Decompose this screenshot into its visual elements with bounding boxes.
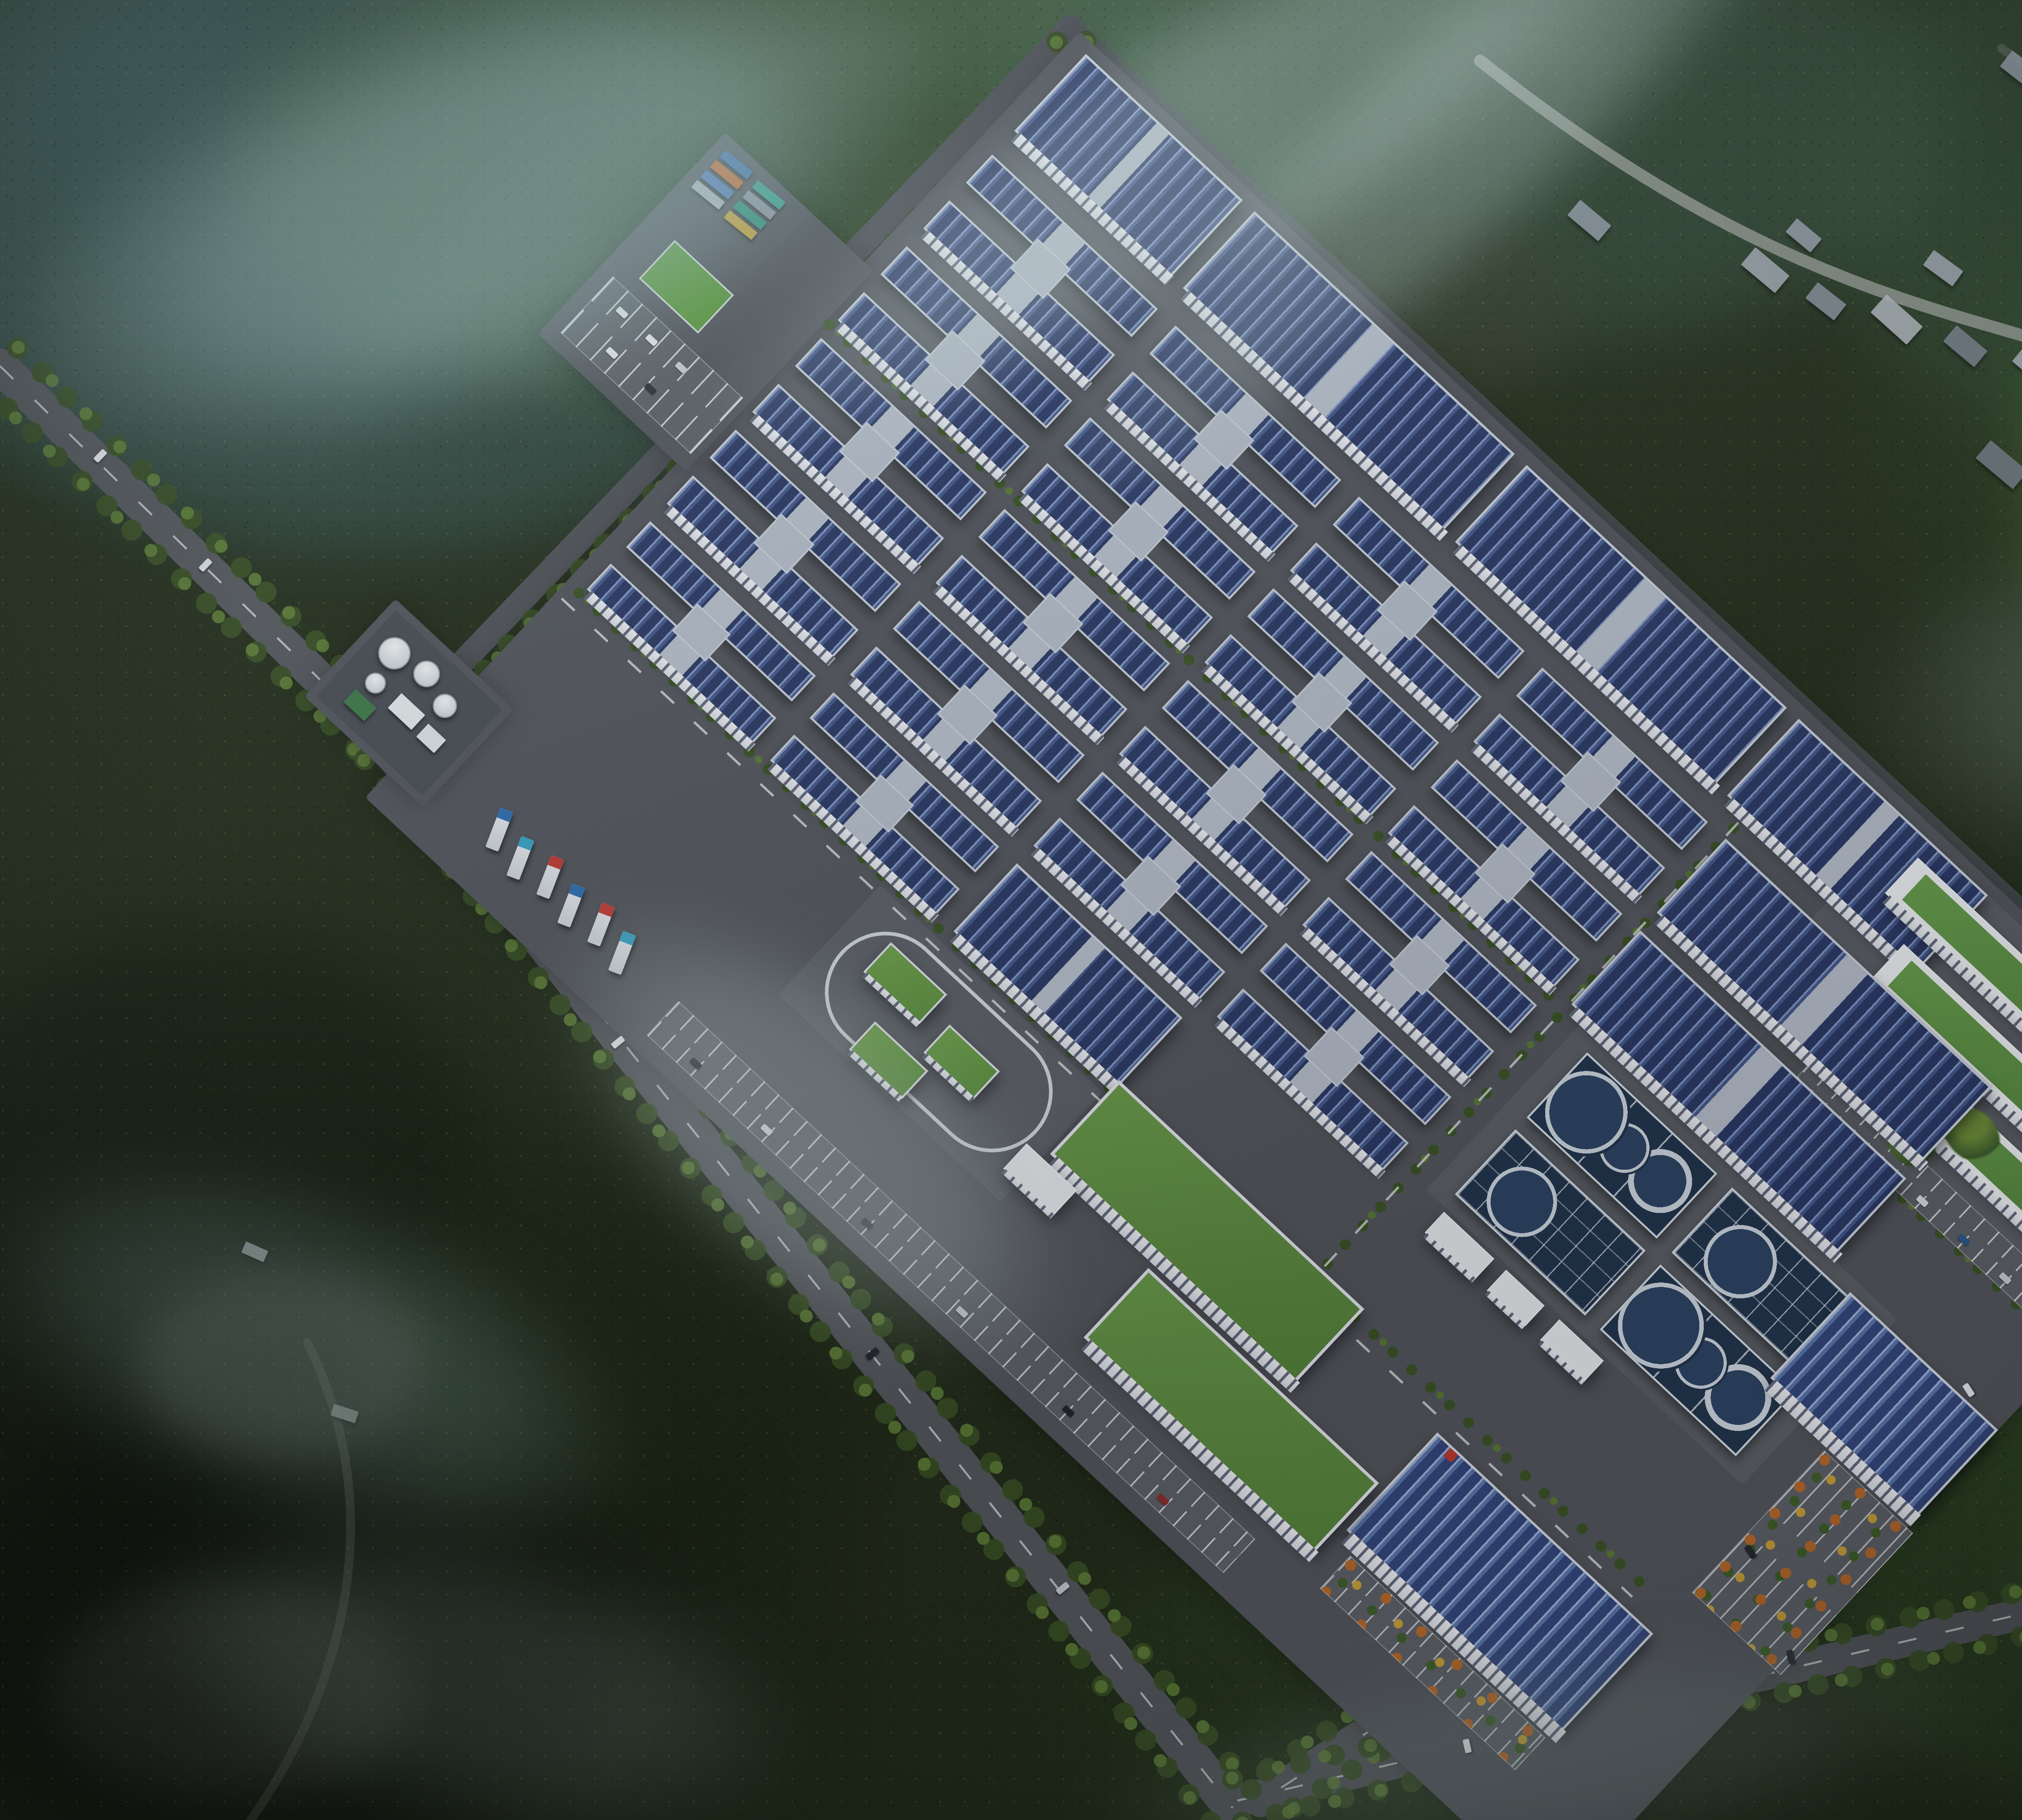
car: [1744, 1544, 1757, 1559]
car: [611, 1035, 625, 1049]
car: [198, 558, 212, 572]
vehicles-layer: [0, 0, 2022, 1820]
car: [865, 1347, 880, 1361]
car: [1462, 1739, 1472, 1754]
car: [1962, 1382, 1975, 1397]
car: [1786, 1650, 1795, 1665]
car: [93, 449, 107, 463]
car: [1055, 1581, 1070, 1595]
aerial-scene: [0, 0, 2022, 1820]
